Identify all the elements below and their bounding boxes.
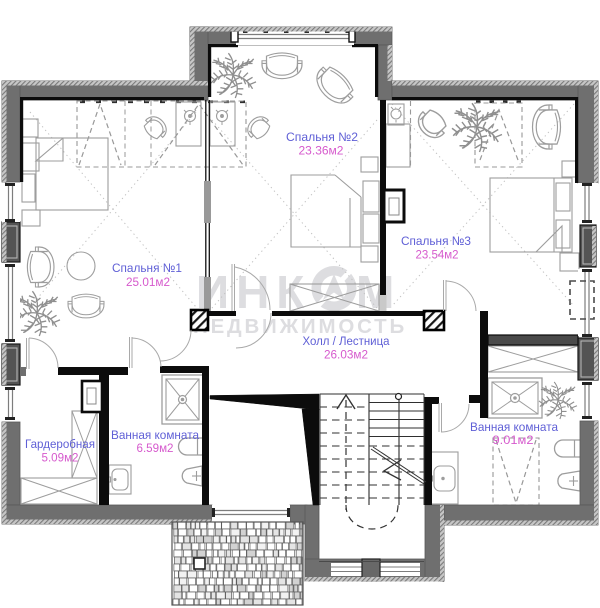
svg-text:6.59м2: 6.59м2 (137, 441, 174, 455)
svg-text:9.01м2: 9.01м2 (493, 433, 534, 447)
svg-text:Спальня №3: Спальня №3 (401, 234, 471, 248)
svg-text:Ванная комната: Ванная комната (111, 428, 199, 442)
svg-text:Холл / Лестница: Холл / Лестница (303, 334, 390, 348)
svg-text:5.09м2: 5.09м2 (42, 451, 79, 465)
svg-text:25.01м2: 25.01м2 (126, 275, 170, 289)
svg-text:Спальня №1: Спальня №1 (112, 261, 182, 275)
svg-text:23.54м2: 23.54м2 (416, 248, 459, 262)
svg-text:Спальня №2: Спальня №2 (286, 130, 358, 144)
svg-text:23.36м2: 23.36м2 (299, 144, 344, 158)
svg-text:Гардеробная: Гардеробная (25, 437, 95, 451)
svg-text:26.03м2: 26.03м2 (324, 348, 368, 362)
svg-text:Ванная комната: Ванная комната (470, 420, 558, 434)
